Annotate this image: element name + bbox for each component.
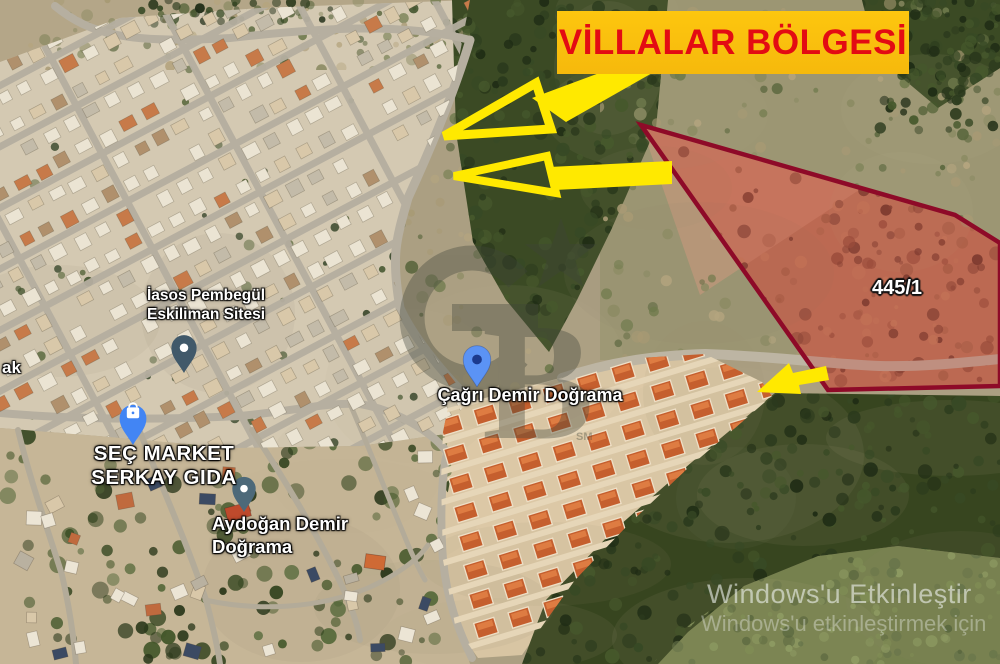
pin-dot-icon xyxy=(180,344,189,353)
aydogan-label: Aydoğan DemirDoğrama xyxy=(212,513,348,558)
pin-dot-icon xyxy=(472,355,482,365)
cagri-pin xyxy=(459,339,495,387)
market-label: SEÇ MARKETSERKAY GIDA xyxy=(91,442,237,490)
parcel-outline xyxy=(641,125,1000,390)
street-label-fragment: ak xyxy=(2,358,21,379)
region-banner: VİLLALAR BÖLGESİ xyxy=(557,11,909,74)
windows-activation-watermark-line1: Windows'u Etkinleştir xyxy=(707,579,972,610)
arrow-2-head-icon xyxy=(454,156,556,193)
estate-site-label: İasos PembegülEskiliman Sitesi xyxy=(147,287,265,325)
pin-dot-icon xyxy=(240,485,248,493)
arrow-2-shaft xyxy=(549,161,672,190)
windows-activation-watermark-line2: Windows'u etkinleştirmek için xyxy=(701,611,986,637)
satellite-map-image: B SM xyxy=(0,0,1000,664)
iasos-site-pin xyxy=(166,325,202,373)
cagri-label: Çağrı Demir Doğrama xyxy=(437,385,622,407)
market-pin xyxy=(115,397,151,445)
arrow-1-head-icon xyxy=(444,83,551,136)
parcel-number-label: 445/1 xyxy=(872,276,922,300)
annotation-overlay xyxy=(0,0,1000,664)
